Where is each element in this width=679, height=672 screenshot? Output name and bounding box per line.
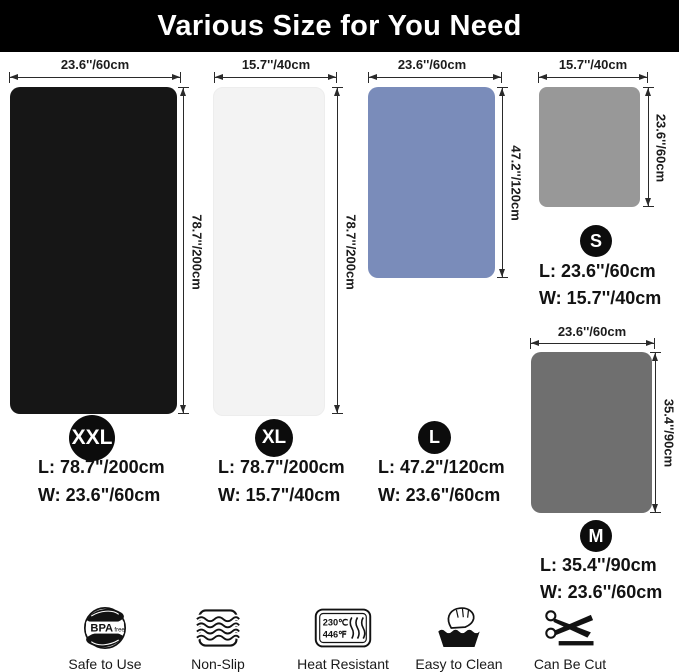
xxl-length-arrow — [178, 87, 189, 414]
l-width-text: W: 23.6"/60cm — [378, 485, 500, 506]
can-be-cut-icon — [543, 606, 597, 650]
m-width-arrow — [530, 338, 655, 349]
page-title: Various Size for You Need — [157, 10, 521, 43]
s-width-arrow — [538, 72, 648, 83]
svg-text:free: free — [114, 627, 125, 633]
l-width-arrow — [368, 72, 502, 83]
xl-width-label: 15.7''/40cm — [242, 57, 310, 72]
s-length-arrow — [643, 87, 654, 207]
badge-xxl: XXL — [69, 415, 115, 461]
badge-xl: XL — [255, 419, 293, 457]
m-length-label: 35.4''/90cm — [662, 399, 677, 467]
mat-xl — [213, 87, 325, 416]
svg-text:446℉: 446℉ — [323, 630, 347, 640]
svg-text:230℃: 230℃ — [323, 617, 349, 627]
badge-l: L — [418, 421, 451, 454]
xl-length-text: L: 78.7"/200cm — [218, 457, 345, 478]
bpa-free-icon: BPA free — [79, 604, 131, 652]
xxl-length-label: 78.7''/200cm — [190, 214, 205, 290]
xxl-width-text: W: 23.6"/60cm — [38, 485, 160, 506]
feature-non-slip: Non-Slip — [153, 604, 283, 672]
svg-text:BPA: BPA — [90, 622, 113, 634]
s-width-text: W: 15.7''/40cm — [539, 288, 661, 309]
title-banner: Various Size for You Need — [0, 0, 679, 52]
l-width-label: 23.6''/60cm — [398, 57, 466, 72]
feature-can-be-cut: Can Be Cut — [505, 604, 635, 672]
xl-width-arrow — [214, 72, 337, 83]
feature-heat-resistant: 230℃ 446℉ Heat Resistant — [278, 604, 408, 672]
mat-l — [368, 87, 495, 278]
m-width-label: 23.6''/60cm — [558, 324, 626, 339]
m-width-text: W: 23.6''/60cm — [540, 582, 662, 603]
xl-width-text: W: 15.7"/40cm — [218, 485, 340, 506]
badge-m: M — [580, 520, 612, 552]
s-length-label: 23.6''/60cm — [654, 114, 669, 182]
m-length-arrow — [650, 352, 661, 513]
mat-xxl — [10, 87, 177, 414]
xl-length-label: 78.7''/200cm — [344, 214, 359, 290]
heat-resistant-icon: 230℃ 446℉ — [314, 606, 372, 650]
badge-s: S — [580, 225, 612, 257]
easy-to-clean-icon — [434, 605, 484, 651]
mat-s — [539, 87, 640, 207]
xxl-width-label: 23.6''/60cm — [61, 57, 129, 72]
mat-m — [531, 352, 652, 513]
product-size-infographic: Various Size for You Need 23.6''/60cm 78… — [0, 0, 679, 672]
feature-label: Non-Slip — [191, 656, 245, 672]
xxl-length-text: L: 78.7"/200cm — [38, 457, 165, 478]
feature-label: Easy to Clean — [415, 656, 502, 672]
feature-label: Heat Resistant — [297, 656, 389, 672]
l-length-arrow — [497, 87, 508, 278]
feature-label: Can Be Cut — [534, 656, 606, 672]
s-width-label: 15.7''/40cm — [559, 57, 627, 72]
l-length-label: 47.2''/120cm — [509, 145, 524, 221]
m-length-text: L: 35.4''/90cm — [540, 555, 657, 576]
xxl-width-arrow — [9, 72, 181, 83]
non-slip-icon — [195, 606, 241, 650]
feature-safe-to-use: BPA free Safe to Use — [40, 604, 170, 672]
xl-length-arrow — [332, 87, 343, 414]
l-length-text: L: 47.2"/120cm — [378, 457, 505, 478]
feature-label: Safe to Use — [68, 656, 141, 672]
s-length-text: L: 23.6''/60cm — [539, 261, 656, 282]
